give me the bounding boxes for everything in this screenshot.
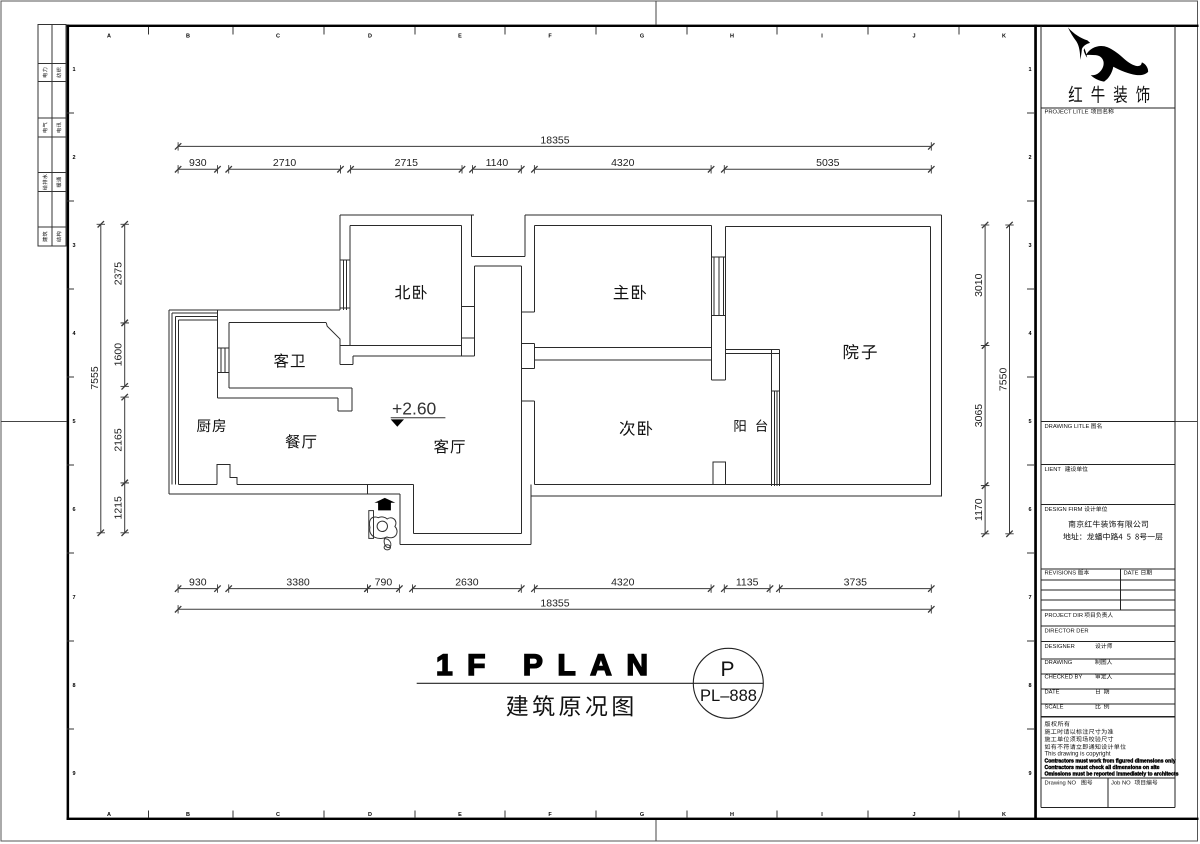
svg-text:18355: 18355 [540, 134, 569, 146]
svg-text:3065: 3065 [973, 404, 985, 428]
svg-text:K: K [1002, 812, 1006, 818]
svg-text:H: H [730, 812, 734, 818]
svg-text:J: J [912, 812, 915, 818]
svg-text:DRAWING LITLE: DRAWING LITLE [1045, 424, 1090, 430]
svg-text:5035: 5035 [816, 157, 840, 169]
svg-text:A: A [107, 812, 111, 818]
svg-text:2: 2 [73, 155, 76, 161]
svg-text:+2.60: +2.60 [392, 399, 437, 419]
svg-text:DRAWING: DRAWING [1045, 660, 1073, 666]
svg-text:Omissions must be reported imm: Omissions must be reported immediately t… [1045, 771, 1179, 777]
svg-text:5: 5 [1028, 419, 1031, 425]
svg-text:PROJECT LITLE: PROJECT LITLE [1045, 110, 1089, 116]
svg-text:4320: 4320 [611, 157, 635, 169]
svg-text:K: K [1002, 33, 1006, 39]
svg-text:9: 9 [73, 771, 76, 777]
svg-text:8: 8 [1028, 683, 1031, 689]
svg-text:3010: 3010 [973, 273, 985, 297]
svg-text:DATE: DATE [1045, 690, 1060, 696]
svg-text:D: D [368, 33, 372, 39]
svg-text:9: 9 [1028, 771, 1031, 777]
svg-text:7550: 7550 [998, 368, 1010, 392]
svg-text:1600: 1600 [113, 343, 125, 367]
svg-text:DESIGNER: DESIGNER [1045, 644, 1075, 650]
svg-text:930: 930 [189, 157, 207, 169]
svg-text:J: J [912, 33, 915, 39]
svg-text:1215: 1215 [113, 496, 125, 520]
svg-text:5: 5 [73, 419, 76, 425]
svg-text:2: 2 [1028, 155, 1031, 161]
svg-text:1140: 1140 [486, 157, 509, 169]
svg-text:1135: 1135 [736, 576, 759, 588]
svg-text:This drawing is copyright: This drawing is copyright [1045, 752, 1111, 758]
svg-text:D: D [368, 812, 372, 818]
svg-text:DESIGN FIRM: DESIGN FIRM [1045, 507, 1083, 513]
svg-text:REVISIONS: REVISIONS [1045, 571, 1077, 577]
svg-text:7: 7 [73, 595, 76, 601]
svg-text:1: 1 [73, 67, 76, 73]
svg-text:LIENT: LIENT [1045, 467, 1062, 473]
svg-text:PL–888: PL–888 [700, 687, 757, 705]
svg-text:SCALE: SCALE [1045, 705, 1064, 711]
svg-text:6: 6 [1028, 507, 1031, 513]
svg-text:7555: 7555 [89, 366, 101, 390]
svg-text:B: B [186, 33, 190, 39]
svg-text:1: 1 [1028, 67, 1031, 73]
svg-text:1170: 1170 [973, 498, 985, 521]
svg-text:P: P [720, 658, 734, 681]
svg-text:A: A [107, 33, 111, 39]
svg-text:CHECKED BY: CHECKED BY [1045, 675, 1083, 681]
svg-text:E: E [458, 812, 462, 818]
svg-text:DIRECTOR DER: DIRECTOR DER [1045, 629, 1089, 635]
svg-text:G: G [640, 33, 644, 39]
svg-text:2710: 2710 [273, 157, 297, 169]
svg-text:2165: 2165 [113, 428, 125, 452]
svg-text:PROJECT DIR: PROJECT DIR [1045, 613, 1084, 619]
svg-text:2630: 2630 [455, 576, 479, 588]
svg-text:Job NO: Job NO [1111, 781, 1131, 787]
svg-text:3: 3 [73, 243, 76, 249]
svg-text:2375: 2375 [113, 262, 125, 286]
svg-text:4320: 4320 [611, 576, 635, 588]
svg-text:Drawing NO: Drawing NO [1045, 781, 1077, 787]
svg-text:Contractors must check all dim: Contractors must check all dimensions on… [1045, 765, 1160, 771]
svg-text:B: B [186, 812, 190, 818]
svg-text:3735: 3735 [844, 576, 868, 588]
svg-text:3: 3 [1028, 243, 1031, 249]
svg-text:8: 8 [73, 683, 76, 689]
svg-text:C: C [276, 33, 280, 39]
svg-text:790: 790 [375, 576, 393, 588]
svg-text:G: G [640, 812, 644, 818]
svg-text:DATE: DATE [1124, 571, 1139, 577]
svg-text:1F PLAN: 1F PLAN [436, 649, 663, 682]
svg-text:6: 6 [73, 507, 76, 513]
svg-text:Contractors must work from fig: Contractors must work from figured dimen… [1045, 758, 1176, 764]
svg-text:930: 930 [189, 576, 207, 588]
svg-text:H: H [730, 33, 734, 39]
svg-text:E: E [458, 33, 462, 39]
svg-text:18355: 18355 [540, 597, 569, 609]
svg-text:3380: 3380 [286, 576, 310, 588]
svg-text:C: C [276, 812, 280, 818]
svg-text:7: 7 [1028, 595, 1031, 601]
svg-text:2715: 2715 [395, 157, 419, 169]
